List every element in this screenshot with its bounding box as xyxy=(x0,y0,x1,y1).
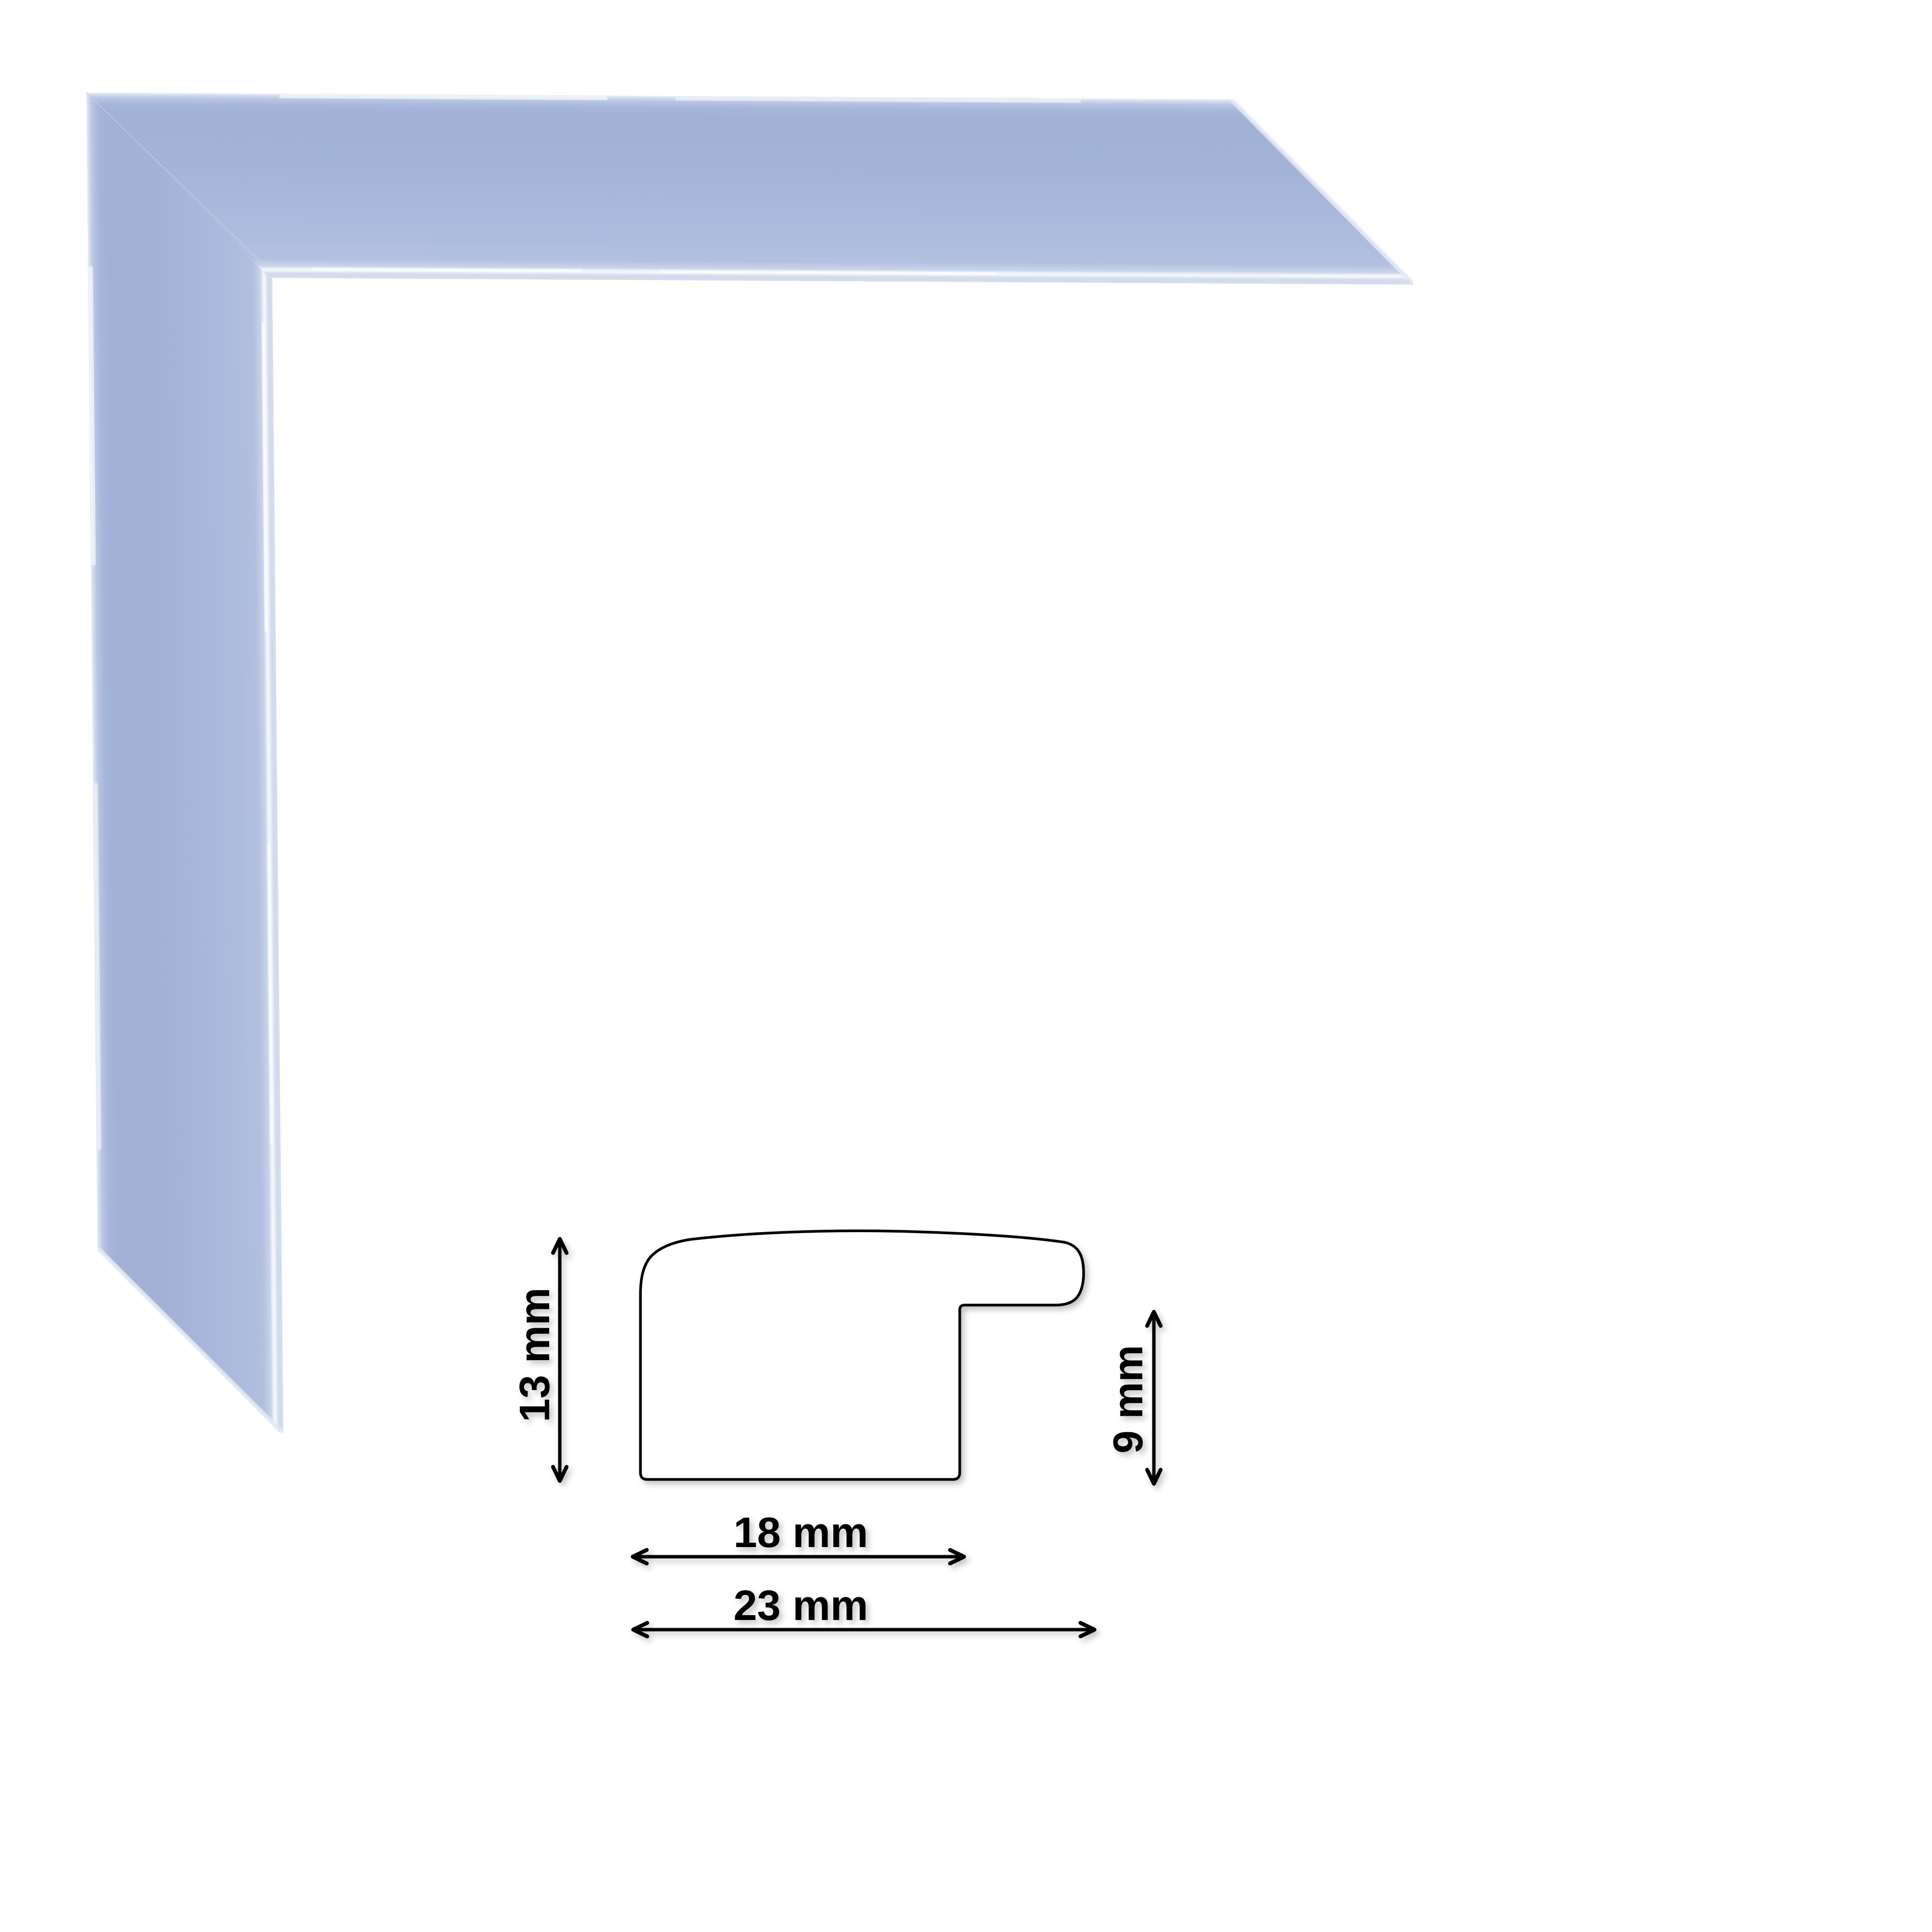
svg-text:13 mm: 13 mm xyxy=(511,1288,558,1422)
svg-text:9 mm: 9 mm xyxy=(1105,1345,1151,1454)
svg-text:23 mm: 23 mm xyxy=(734,1581,868,1629)
svg-text:18 mm: 18 mm xyxy=(734,1508,868,1556)
